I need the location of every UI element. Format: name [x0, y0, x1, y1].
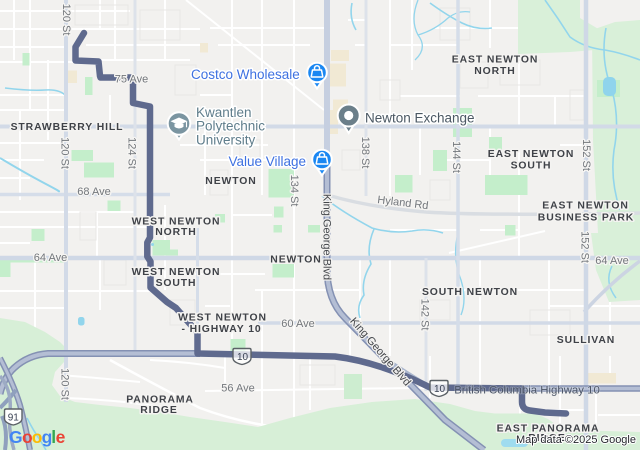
svg-text:152 St: 152 St — [580, 139, 592, 171]
svg-text:SOUTH: SOUTH — [156, 278, 197, 289]
svg-text:e: e — [56, 427, 66, 447]
svg-text:University: University — [196, 132, 256, 147]
svg-text:NORTH: NORTH — [474, 66, 515, 77]
svg-text:124 St: 124 St — [126, 137, 138, 169]
svg-text:120 St: 120 St — [59, 368, 71, 400]
svg-text:SOUTH: SOUTH — [511, 161, 552, 172]
svg-text:10: 10 — [237, 352, 249, 363]
svg-text:60 Ave: 60 Ave — [281, 318, 314, 330]
svg-text:NEWTON: NEWTON — [205, 176, 256, 187]
svg-text:British Columbia Highway 10: British Columbia Highway 10 — [454, 385, 600, 397]
svg-text:Value Village: Value Village — [229, 154, 307, 169]
svg-text:G: G — [9, 427, 23, 447]
svg-text:10: 10 — [434, 384, 446, 395]
svg-text:- HIGHWAY 10: - HIGHWAY 10 — [181, 324, 261, 335]
svg-text:EAST NEWTON: EAST NEWTON — [488, 149, 575, 160]
svg-text:142 St: 142 St — [419, 299, 431, 331]
svg-text:75 Ave: 75 Ave — [115, 74, 148, 86]
svg-text:PANORAMA: PANORAMA — [126, 395, 194, 406]
svg-text:RIDGE: RIDGE — [140, 405, 177, 416]
svg-text:Map data ©2025 Google: Map data ©2025 Google — [516, 434, 636, 446]
svg-text:152 St: 152 St — [579, 231, 591, 263]
svg-text:144 St: 144 St — [450, 141, 462, 173]
svg-text:EAST NEWTON: EAST NEWTON — [542, 201, 629, 212]
svg-text:WEST NEWTON: WEST NEWTON — [178, 313, 267, 324]
svg-text:64 Ave: 64 Ave — [34, 252, 67, 264]
svg-text:SULLIVAN: SULLIVAN — [557, 335, 615, 346]
svg-text:NORTH: NORTH — [155, 227, 196, 238]
svg-text:120 St: 120 St — [59, 137, 71, 169]
svg-text:134 St: 134 St — [288, 175, 300, 207]
svg-text:138 St: 138 St — [359, 137, 371, 169]
svg-text:BUSINESS PARK: BUSINESS PARK — [538, 213, 634, 224]
svg-text:EAST NEWTON: EAST NEWTON — [452, 55, 539, 66]
svg-text:64 Ave: 64 Ave — [595, 255, 628, 267]
svg-text:NEWTON: NEWTON — [270, 255, 321, 266]
svg-text:Costco Wholesale: Costco Wholesale — [191, 67, 300, 82]
svg-text:56 Ave: 56 Ave — [221, 383, 254, 395]
svg-text:Newton Exchange: Newton Exchange — [365, 111, 475, 126]
svg-text:120 St: 120 St — [60, 4, 72, 36]
svg-text:SOUTH NEWTON: SOUTH NEWTON — [422, 287, 518, 298]
svg-text:King George Blvd: King George Blvd — [321, 194, 333, 280]
svg-text:WEST NEWTON: WEST NEWTON — [132, 217, 221, 228]
svg-text:68 Ave: 68 Ave — [77, 186, 110, 198]
svg-text:91: 91 — [8, 413, 20, 424]
svg-text:STRAWBERRY HILL: STRAWBERRY HILL — [11, 122, 124, 133]
svg-text:WEST NEWTON: WEST NEWTON — [132, 267, 221, 278]
